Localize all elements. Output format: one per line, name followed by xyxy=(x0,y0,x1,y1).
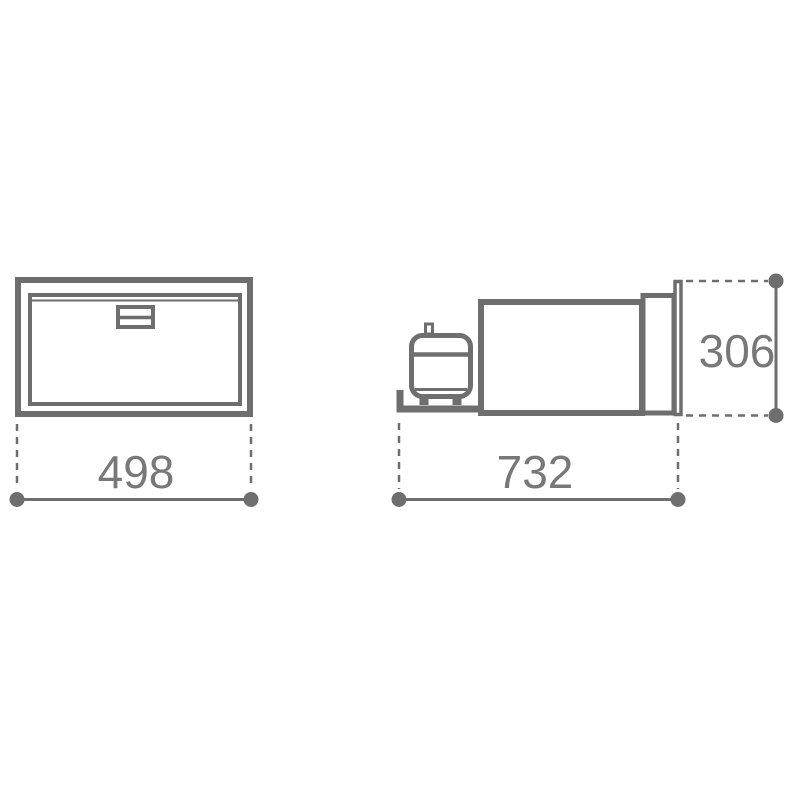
width-endpoint-dot-left xyxy=(10,492,25,507)
compressor xyxy=(412,324,471,405)
front-drawer-panel xyxy=(30,295,240,404)
dimension-height: 306 xyxy=(686,274,784,424)
front-view xyxy=(18,280,250,414)
compressor-foot-left xyxy=(420,398,429,405)
compressor-valve-nub xyxy=(426,324,433,334)
height-endpoint-dot-bottom xyxy=(769,408,784,423)
width-endpoint-dot-right xyxy=(244,492,259,507)
height-dimension-value: 306 xyxy=(699,325,776,377)
depth-endpoint-dot-right xyxy=(671,492,686,507)
depth-endpoint-dot-left xyxy=(392,492,407,507)
depth-dimension-value: 732 xyxy=(497,446,574,498)
height-endpoint-dot-top xyxy=(769,274,784,289)
side-front-panel xyxy=(675,282,681,415)
dimension-drawing-canvas: 498 xyxy=(0,0,800,800)
compressor-foot-right xyxy=(453,398,462,405)
side-cabinet-body xyxy=(481,302,642,413)
side-view xyxy=(400,282,681,415)
dimension-depth: 732 xyxy=(392,423,686,507)
dimension-width: 498 xyxy=(10,424,259,507)
side-door-step xyxy=(643,296,674,414)
width-dimension-value: 498 xyxy=(98,446,175,498)
compressor-tank xyxy=(412,336,471,397)
technical-drawing: 498 xyxy=(0,0,800,800)
